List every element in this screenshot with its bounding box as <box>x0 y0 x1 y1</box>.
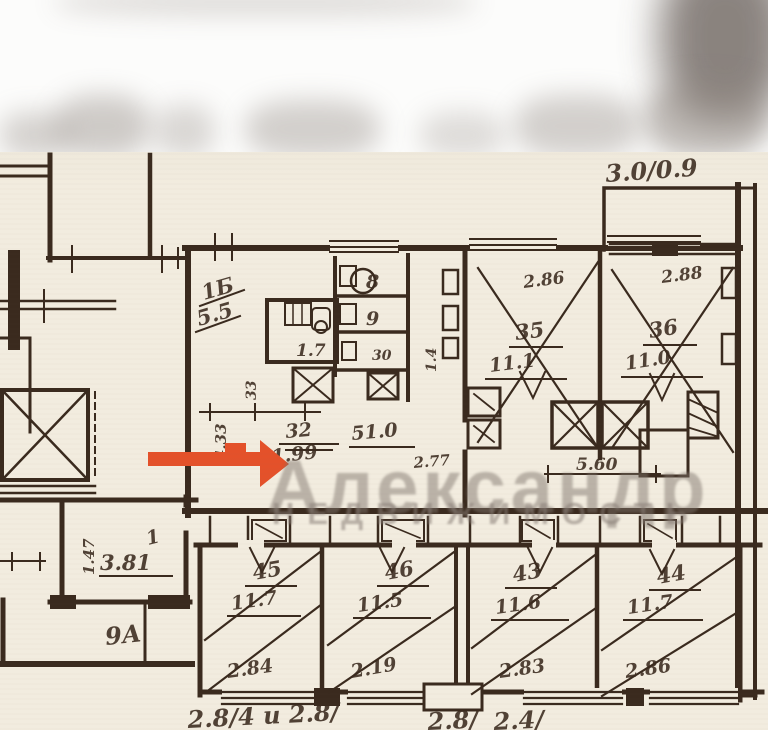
scan-grain <box>0 152 768 730</box>
floorplan-scan: 1.47 1 3.81 9А <box>0 0 768 730</box>
